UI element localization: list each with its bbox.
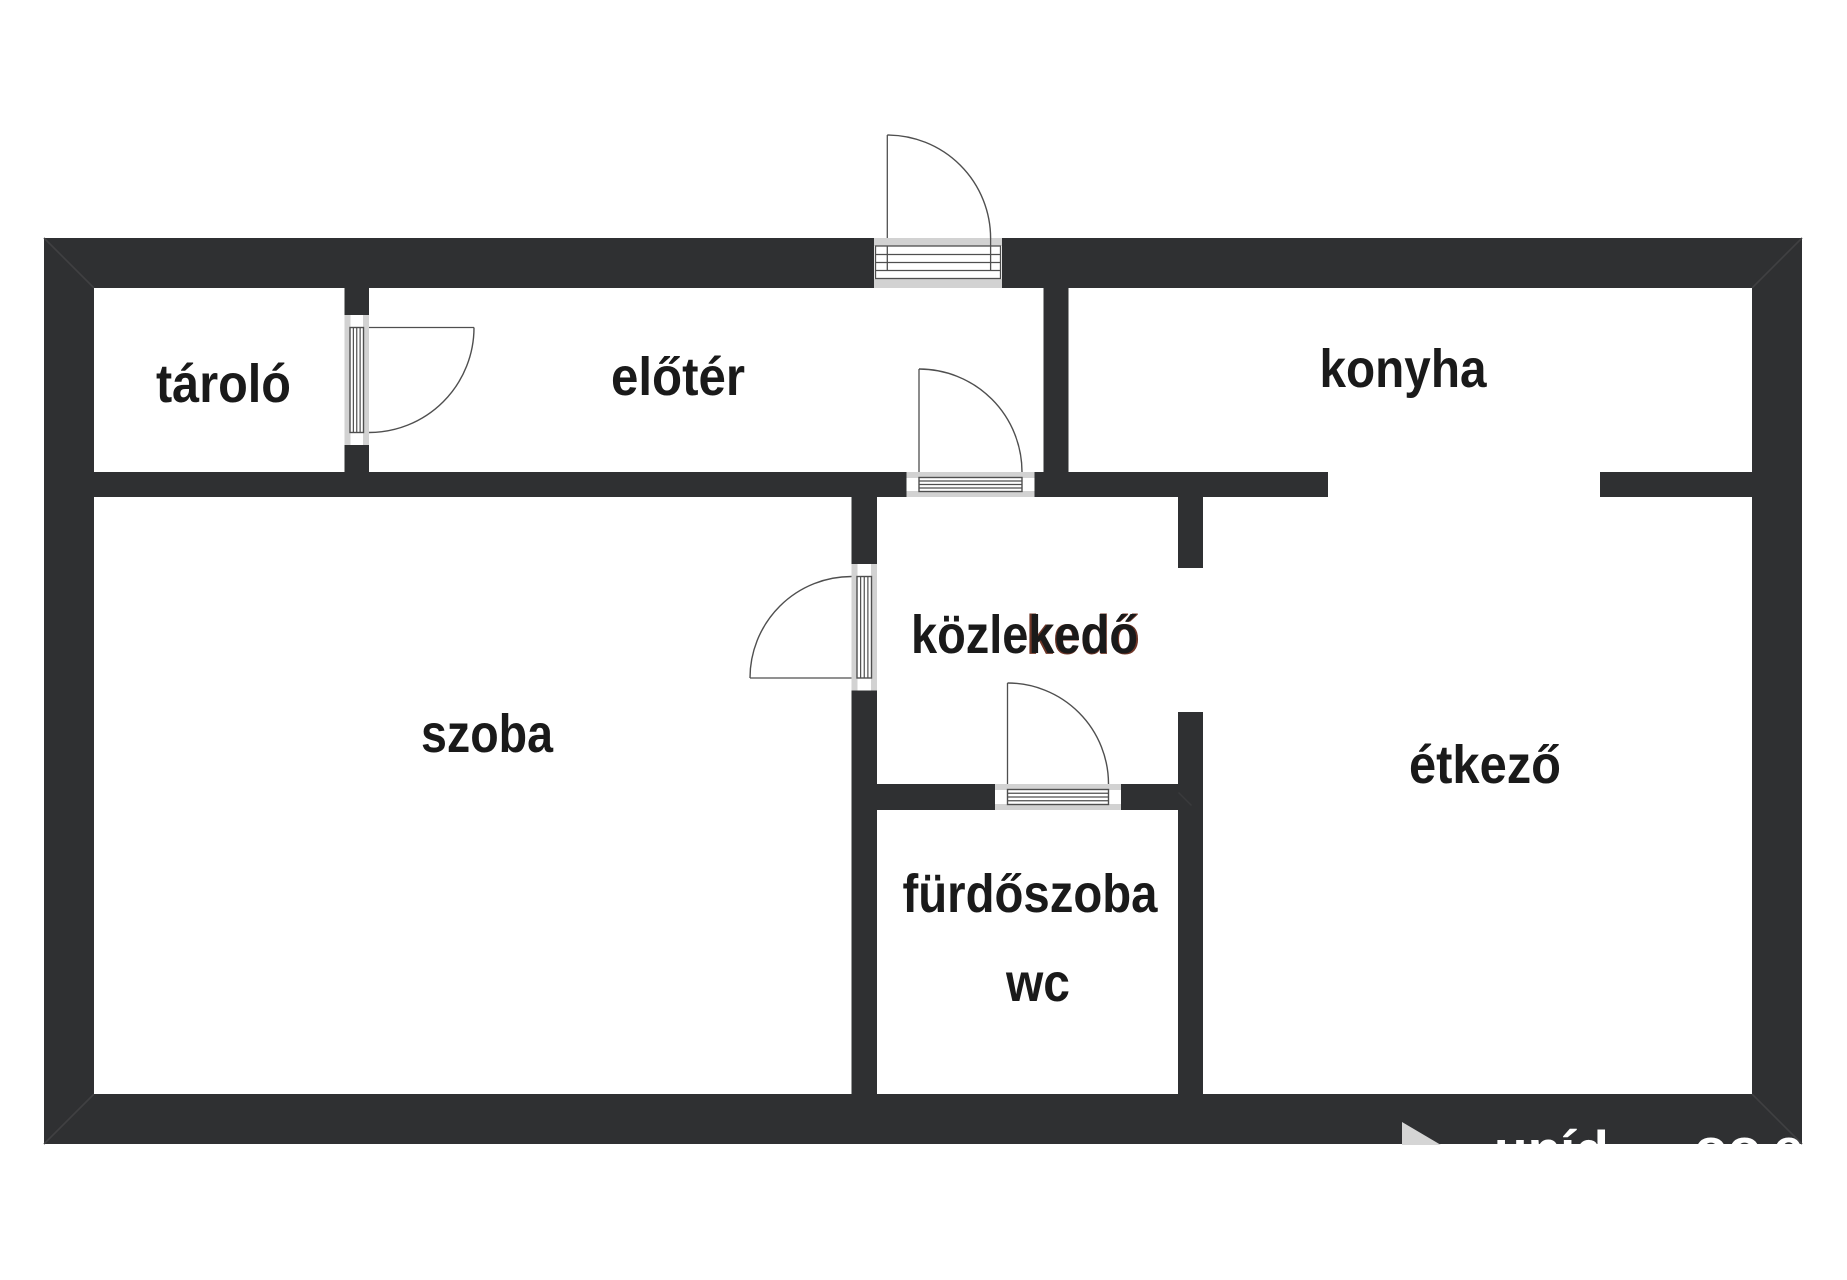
svg-text:előtér: előtér: [611, 347, 745, 407]
svg-text:tároló: tároló: [156, 354, 291, 414]
svg-text:oo: oo: [1694, 1117, 1761, 1179]
svg-text:íd: íd: [1560, 1119, 1609, 1181]
svg-text:wc: wc: [1005, 953, 1070, 1013]
svg-text:szoba: szoba: [421, 704, 554, 764]
svg-text:konyha: konyha: [1320, 339, 1488, 399]
svg-text:közlekedő: közlekedő: [911, 605, 1138, 665]
svg-text:un: un: [1494, 1119, 1561, 1181]
svg-text:étkező: étkező: [1409, 735, 1561, 795]
svg-text:fürdőszoba: fürdőszoba: [903, 864, 1159, 924]
svg-text:e: e: [1773, 1117, 1804, 1179]
